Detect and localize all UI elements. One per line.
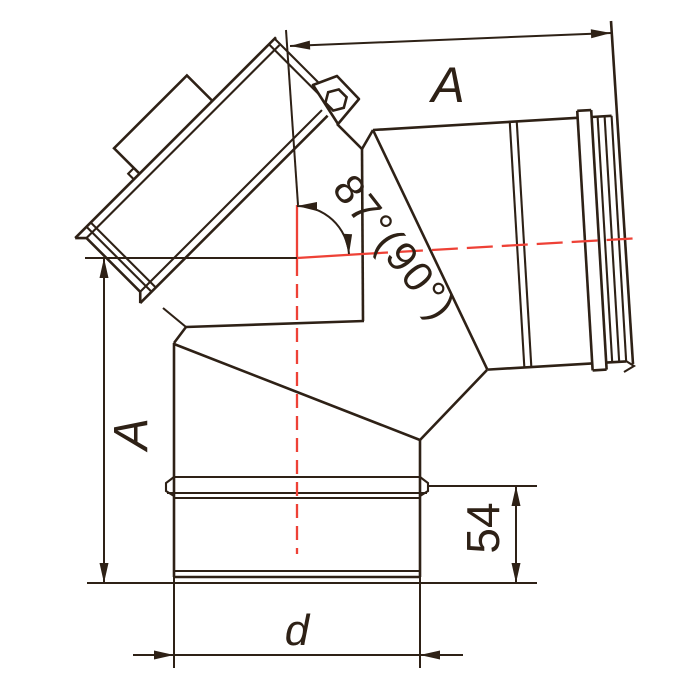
- label-diameter: d: [285, 606, 311, 655]
- angle-label: 87°(90°): [324, 166, 466, 330]
- label-top-width: A: [428, 57, 464, 113]
- centerline-horizontal: [297, 254, 362, 258]
- dimension-socket-depth: 54: [428, 486, 537, 583]
- centerlines: [297, 205, 641, 554]
- label-socket-depth: 54: [457, 502, 509, 553]
- branch-cover-box: [114, 75, 212, 173]
- bolt-plate: [313, 76, 359, 124]
- dimension-diameter: d: [133, 577, 463, 668]
- elbow-technical-drawing: 87°(90°) A A 54 d: [0, 0, 700, 700]
- label-left-height: A: [105, 418, 158, 453]
- horizontal-outlet-end: [611, 21, 634, 372]
- angle-dimension: 87°(90°): [297, 166, 466, 330]
- drawing-canvas: 87°(90°) A A 54 d: [0, 0, 700, 700]
